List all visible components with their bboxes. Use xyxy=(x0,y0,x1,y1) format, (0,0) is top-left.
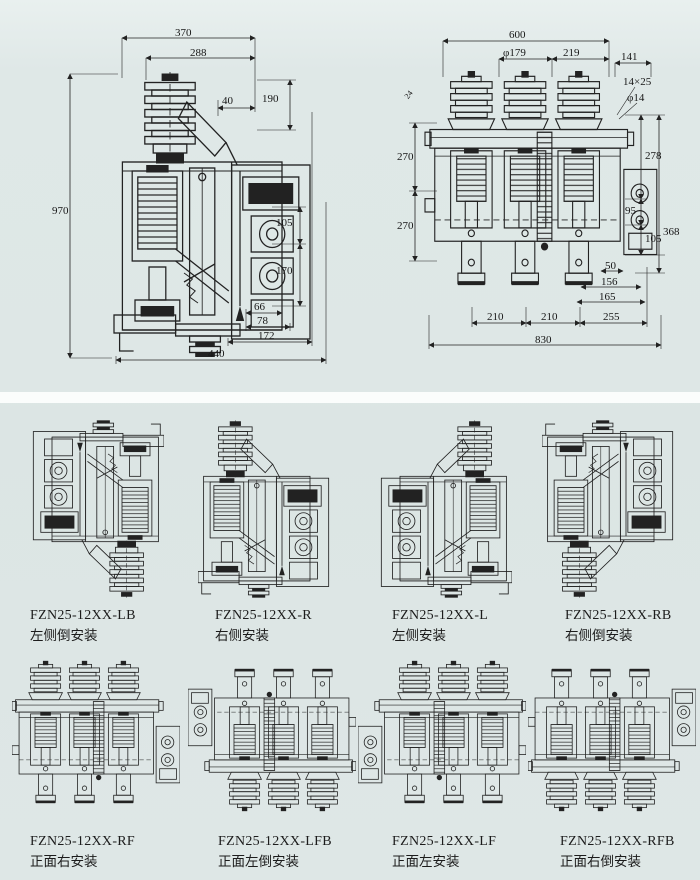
variant-mounting-label: 左侧安装 xyxy=(392,626,530,646)
variant-mounting-label: 左侧倒安装 xyxy=(30,626,184,646)
side-view-inverted-left-diagram xyxy=(24,418,164,600)
variant-mounting-label: 右侧倒安装 xyxy=(565,626,700,646)
section-divider xyxy=(0,392,700,403)
dim-label: 440 xyxy=(208,349,225,360)
variant-cell: FZN25-12XX-RB 右侧倒安装 xyxy=(528,418,700,646)
dim-label: 368 xyxy=(663,227,680,238)
dim-label: 278 xyxy=(645,151,662,162)
dim-label: 255 xyxy=(603,312,620,323)
side-view-left-diagram xyxy=(372,418,512,600)
dim-label: 95 xyxy=(625,206,636,217)
dim-label: 190 xyxy=(262,94,279,105)
dim-label: 78 xyxy=(257,316,268,327)
variant-cell: FZN25-12XX-L 左侧安装 xyxy=(358,418,530,646)
dim-label: 970 xyxy=(52,206,69,217)
variant-mounting-label: 正面左倒安装 xyxy=(218,852,358,872)
variant-model-label: FZN25-12XX-LB xyxy=(30,606,184,626)
variant-model-label: FZN25-12XX-L xyxy=(392,606,530,626)
variant-cell: FZN25-12XX-LFB 正面左倒安装 xyxy=(186,648,358,872)
dim-label: 105 xyxy=(276,218,293,229)
variant-model-label: FZN25-12XX-RB xyxy=(565,606,700,626)
dim-label: 50 xyxy=(605,261,616,272)
dim-label: 40 xyxy=(222,96,233,107)
front-view-inverted-right-diagram xyxy=(528,648,696,824)
dim-label: 141 xyxy=(621,52,638,63)
dim-label: 370 xyxy=(175,28,192,39)
variant-cell: FZN25-12XX-RF 正面右安装 xyxy=(10,648,182,872)
variant-cell: FZN25-12XX-R 右侧安装 xyxy=(188,418,360,646)
variant-mounting-label: 右侧安装 xyxy=(215,626,360,646)
dim-label: 219 xyxy=(563,48,580,59)
variant-mounting-label: 正面右倒安装 xyxy=(560,852,698,872)
dim-label: 600 xyxy=(509,30,526,41)
variant-model-label: FZN25-12XX-LFB xyxy=(218,832,358,852)
dim-label: 830 xyxy=(535,335,552,346)
front-view-inverted-left-diagram xyxy=(188,648,356,824)
dim-label: 172 xyxy=(258,331,275,342)
variant-mounting-label: 正面右安装 xyxy=(30,852,182,872)
variant-cell: FZN25-12XX-RFB 正面右倒安装 xyxy=(526,648,698,872)
front-view-dimensioned-drawing: 600 φ179 219 141 14×25 φ14 24 270 270 27… xyxy=(395,15,695,373)
dim-label: 165 xyxy=(599,292,616,303)
dim-label: 210 xyxy=(541,312,558,323)
front-view-right-diagram xyxy=(12,648,180,824)
side-view-dimensioned-drawing: 370 288 190 40 970 105 170 66 78 172 440 xyxy=(50,22,350,380)
dim-label: 66 xyxy=(254,302,265,313)
dim-label: φ179 xyxy=(503,48,526,59)
dim-label: 288 xyxy=(190,48,207,59)
dim-label: φ14 xyxy=(627,93,644,104)
side-view-right-diagram xyxy=(198,418,338,600)
dim-label: 14×25 xyxy=(623,77,651,88)
dim-label: 210 xyxy=(487,312,504,323)
variant-mounting-label: 正面左安装 xyxy=(392,852,528,872)
datasheet-page: 370 288 190 40 970 105 170 66 78 172 440 xyxy=(0,0,700,880)
variant-cell: FZN25-12XX-LB 左侧倒安装 xyxy=(12,418,184,646)
side-view-diagram xyxy=(50,22,350,380)
dim-label: 170 xyxy=(276,266,293,277)
dim-label: 105 xyxy=(645,234,662,245)
dim-label: 270 xyxy=(397,152,414,163)
variant-model-label: FZN25-12XX-LF xyxy=(392,832,528,852)
front-view-left-diagram xyxy=(358,648,526,824)
variant-cell: FZN25-12XX-LF 正面左安装 xyxy=(356,648,528,872)
dim-label: 156 xyxy=(601,277,618,288)
dim-label: 270 xyxy=(397,221,414,232)
variant-model-label: FZN25-12XX-R xyxy=(215,606,360,626)
variant-model-label: FZN25-12XX-RF xyxy=(30,832,182,852)
variant-model-label: FZN25-12XX-RFB xyxy=(560,832,698,852)
side-view-inverted-right-diagram xyxy=(542,418,682,600)
